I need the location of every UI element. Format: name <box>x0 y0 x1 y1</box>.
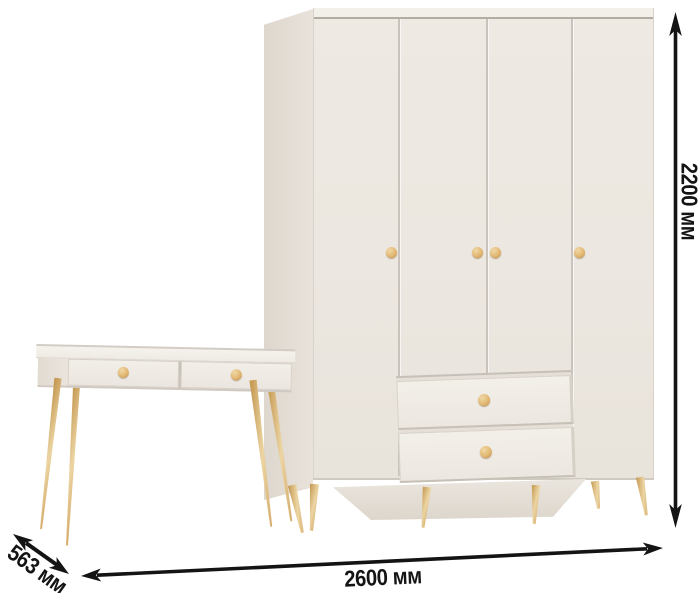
console-leg <box>61 378 83 546</box>
wardrobe-top-edge <box>314 8 653 19</box>
wardrobe-front <box>313 8 654 480</box>
console-drawer-knob <box>230 369 241 380</box>
console-drawer <box>181 361 293 390</box>
width-dimension-label: 2600 мм <box>316 561 449 593</box>
product-image: 2600 мм 2200 мм 563 мм <box>0 0 700 593</box>
wardrobe-door-knob <box>574 247 585 258</box>
wardrobe-drawer-knob <box>478 394 490 406</box>
console-drawer-knob <box>117 367 128 378</box>
console-leg <box>35 377 64 529</box>
console-side-face <box>38 358 69 386</box>
wardrobe-base-panel <box>333 479 586 520</box>
wardrobe-drawer-section <box>396 370 575 483</box>
wardrobe-leg <box>305 484 321 532</box>
wardrobe-drawer <box>396 375 574 430</box>
wardrobe-door-knob <box>386 247 397 258</box>
wardrobe-drawer <box>398 427 576 483</box>
console-drawer <box>68 359 180 388</box>
wardrobe-door-knob <box>472 247 483 258</box>
wardrobe-drawer-knob <box>480 446 492 458</box>
height-dimension-arrow <box>669 12 682 528</box>
wardrobe-door-knob <box>490 247 501 258</box>
wardrobe-leg <box>589 480 604 509</box>
wardrobe-leg <box>634 476 652 516</box>
wardrobe-side-panel <box>264 9 313 500</box>
door-divider <box>486 19 488 373</box>
height-dimension-label: 2200 мм <box>676 163 700 240</box>
depth-dimension-label: 563 мм <box>2 539 64 593</box>
